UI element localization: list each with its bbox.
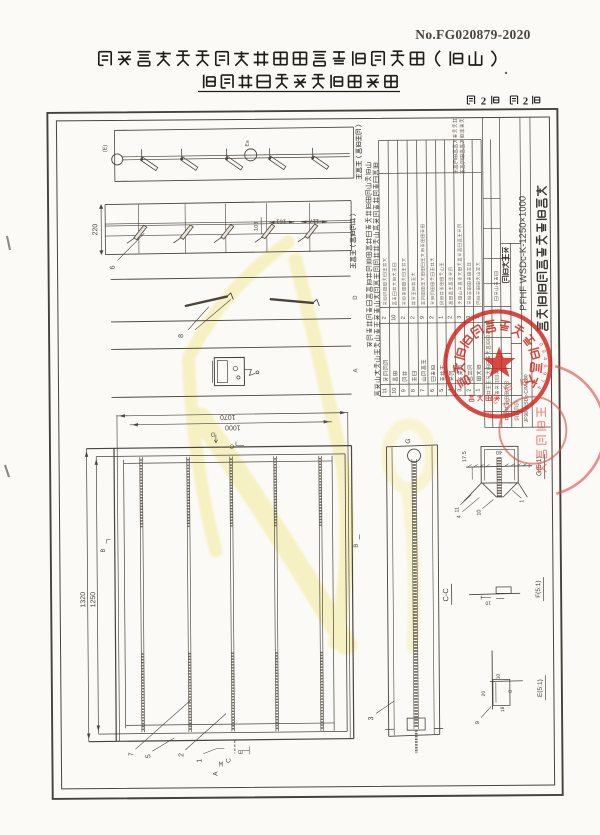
svg-text:D: D: [210, 431, 215, 437]
svg-text:220: 220: [92, 224, 99, 236]
svg-text:7: 7: [420, 389, 426, 392]
svg-text:C-C: C-C: [441, 588, 450, 602]
svg-text:10: 10: [496, 673, 502, 679]
svg-text:161: 161: [276, 218, 287, 224]
svg-text:1: 1: [438, 316, 444, 319]
svg-text:7: 7: [128, 752, 135, 756]
svg-text:1: 1: [196, 759, 203, 763]
svg-text:4: 4: [457, 515, 463, 518]
svg-text:9: 9: [401, 389, 407, 392]
svg-text:2: 2: [523, 97, 528, 108]
svg-text:C: C: [229, 443, 234, 449]
svg-text:2: 2: [481, 97, 486, 108]
svg-text:D: D: [353, 295, 359, 300]
svg-text:0: 0: [542, 364, 548, 367]
svg-text:10: 10: [391, 315, 397, 321]
svg-text:2: 2: [410, 316, 416, 319]
svg-text:B: B: [101, 549, 107, 553]
svg-text:G(5:1): G(5:1): [536, 456, 543, 476]
svg-text:F(5:1): F(5:1): [535, 580, 542, 597]
svg-text:11: 11: [454, 507, 460, 513]
svg-text:10: 10: [476, 510, 482, 516]
svg-text:3: 3: [457, 389, 463, 392]
svg-text:3: 3: [457, 316, 463, 319]
svg-text:18: 18: [500, 706, 506, 712]
svg-text:6: 6: [430, 389, 436, 392]
svg-text:5: 5: [145, 754, 152, 758]
svg-text:3: 3: [368, 716, 375, 720]
svg-text:2: 2: [429, 316, 435, 319]
svg-text:8: 8: [508, 690, 514, 693]
svg-text:40: 40: [496, 449, 502, 455]
svg-text:2: 2: [467, 389, 473, 392]
svg-text:8: 8: [178, 334, 185, 338]
svg-text:117: 117: [309, 217, 319, 223]
svg-text:1: 1: [519, 500, 525, 503]
svg-text:C: C: [225, 758, 232, 763]
svg-text:8: 8: [411, 389, 417, 392]
svg-text:9: 9: [420, 316, 426, 319]
svg-text:10: 10: [485, 600, 491, 606]
svg-text:2: 2: [401, 316, 407, 319]
svg-text:20: 20: [481, 691, 487, 697]
svg-text:1070: 1070: [220, 413, 236, 420]
svg-text:E(5:1): E(5:1): [537, 679, 544, 697]
svg-text:Ea: Ea: [245, 140, 251, 146]
svg-text:5: 5: [439, 389, 445, 392]
svg-text:2: 2: [382, 316, 388, 319]
svg-text:2: 2: [178, 753, 185, 757]
svg-text:17.5: 17.5: [462, 451, 468, 462]
svg-text:No.FG020879-2020: No.FG020879-2020: [415, 27, 530, 42]
svg-text:2: 2: [447, 316, 453, 319]
svg-text:(E): (E): [103, 145, 109, 153]
svg-text:E: E: [238, 750, 244, 754]
svg-text:1: 1: [476, 389, 482, 392]
svg-text:A: A: [353, 369, 359, 373]
svg-text:B: B: [354, 544, 360, 548]
svg-text:10: 10: [392, 388, 398, 394]
svg-text:1000: 1000: [225, 423, 241, 430]
svg-text:PFHF WSDc-K-1250×1000: PFHF WSDc-K-1250×1000: [518, 196, 530, 311]
svg-text:11: 11: [382, 388, 388, 394]
svg-text:1250: 1250: [90, 592, 97, 608]
svg-text:103: 103: [254, 222, 260, 231]
svg-text:A: A: [213, 771, 220, 776]
svg-text:6: 6: [110, 265, 117, 269]
svg-text:G: G: [405, 439, 412, 444]
svg-text:1320: 1320: [80, 592, 87, 608]
